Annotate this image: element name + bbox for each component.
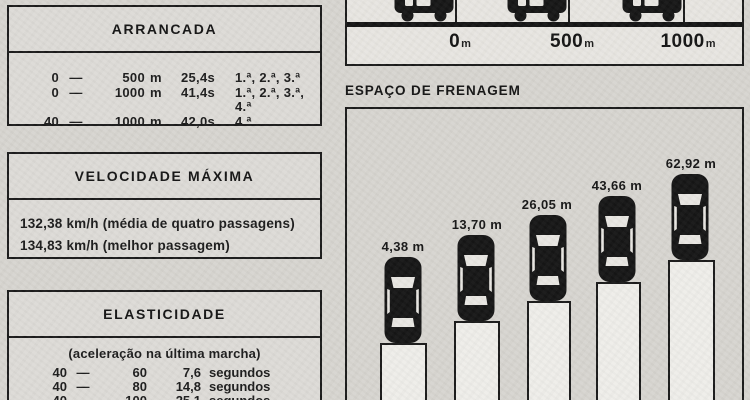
time-unit: segundos: [201, 366, 320, 380]
road-line: [347, 22, 742, 27]
car-top-view-icon: [456, 234, 496, 322]
marker-unit: m: [706, 38, 716, 50]
elasticidade-subtitle: (aceleração na última marcha): [9, 346, 320, 362]
arrancada-title: ARRANCADA: [112, 21, 217, 37]
braking-value-label: 62,92 m: [641, 156, 741, 171]
marker-unit: m: [584, 38, 594, 50]
range-from: 40: [9, 366, 67, 380]
distance-tick-line: [568, 0, 570, 22]
range-to: 1000: [93, 115, 145, 130]
elasticidade-row: 40 — 100 25,1 segundos: [9, 394, 320, 400]
braking-value-label: 4,38 m: [353, 239, 453, 254]
braking-value-label: 13,70 m: [427, 217, 527, 232]
range-unit: m: [145, 86, 167, 115]
range-from: 40: [9, 115, 59, 130]
arrancada-body: 0 — 500 m 25,4s 1.ª, 2.ª, 3.ª 0 — 1000 m…: [9, 53, 320, 129]
gears-used: 1.ª, 2.ª, 3.ª: [229, 71, 320, 86]
braking-bar: [596, 282, 641, 400]
marker-unit: m: [461, 38, 471, 50]
time-unit: segundos: [201, 380, 320, 394]
elasticidade-row: 40 — 60 7,6 segundos: [9, 366, 320, 380]
arrancada-row: 40 — 1000 m 42,0s 4.ª: [9, 115, 320, 130]
braking-bar: [527, 301, 571, 400]
range-unit: m: [145, 71, 167, 86]
range-to: 100: [99, 394, 147, 400]
range-to: 1000: [93, 86, 145, 115]
braking-value-label: 26,05 m: [497, 197, 597, 212]
range-to: 60: [99, 366, 147, 380]
braking-bar: [668, 260, 715, 400]
car-top-view-icon: [383, 256, 423, 344]
arrancada-header: ARRANCADA: [9, 7, 320, 53]
braking-bar: [380, 343, 427, 400]
marker-value: 0: [449, 31, 460, 52]
velocidade-title: VELOCIDADE MÁXIMA: [75, 168, 255, 184]
marker-value: 500: [550, 31, 583, 52]
distance-tick-line: [455, 0, 457, 22]
top-speed-best: 134,83 km/h (melhor passagem): [20, 235, 320, 257]
range-dash: —: [59, 86, 93, 115]
distance-marker-1000m: 1000m: [650, 31, 726, 53]
range-dash: —: [67, 394, 99, 400]
time-value: 14,8: [147, 380, 201, 394]
velocidade-maxima-box: VELOCIDADE MÁXIMA 132,38 km/h (média de …: [7, 152, 322, 259]
time-value: 41,4s: [167, 86, 229, 115]
range-to: 80: [99, 380, 147, 394]
range-dash: —: [59, 71, 93, 86]
range-unit: m: [145, 115, 167, 130]
range-to: 500: [93, 71, 145, 86]
time-value: 25,4s: [167, 71, 229, 86]
car-side-icon: [507, 0, 567, 22]
range-dash: —: [59, 115, 93, 130]
gears-used: 1.ª, 2.ª, 3.ª, 4.ª: [229, 86, 320, 115]
elasticidade-header: ELASTICIDADE: [9, 292, 320, 338]
car-side-icon: [622, 0, 682, 22]
time-value: 42,0s: [167, 115, 229, 130]
marker-value: 1000: [660, 31, 704, 52]
elasticidade-box: ELASTICIDADE (aceleração na última march…: [7, 290, 322, 400]
car-top-view-icon: [597, 195, 637, 283]
time-unit: segundos: [201, 394, 320, 400]
distance-marker-0m: 0m: [425, 31, 495, 53]
arrancada-box: ARRANCADA 0 — 500 m 25,4s 1.ª, 2.ª, 3.ª …: [7, 5, 322, 126]
braking-chart-title: ESPAÇO DE FRENAGEM: [345, 83, 521, 98]
arrancada-row: 0 — 1000 m 41,4s 1.ª, 2.ª, 3.ª, 4.ª: [9, 86, 320, 115]
time-value: 7,6: [147, 366, 201, 380]
braking-value-label: 43,66 m: [567, 178, 667, 193]
road-test-data-page: ARRANCADA 0 — 500 m 25,4s 1.ª, 2.ª, 3.ª …: [0, 0, 750, 400]
distance-tick-line: [683, 0, 685, 22]
car-side-icon: [394, 0, 454, 22]
arrancada-row: 0 — 500 m 25,4s 1.ª, 2.ª, 3.ª: [9, 71, 320, 86]
elasticidade-body: (aceleração na última marcha) 40 — 60 7,…: [9, 338, 320, 400]
braking-bar: [454, 321, 500, 400]
car-top-view-icon: [670, 173, 710, 261]
range-from: 0: [9, 86, 59, 115]
range-dash: —: [67, 380, 99, 394]
car-top-view-icon: [528, 214, 568, 302]
distance-marker-500m: 500m: [537, 31, 607, 53]
elasticidade-title: ELASTICIDADE: [103, 306, 226, 322]
top-speed-average: 132,38 km/h (média de quatro passagens): [20, 213, 320, 235]
velocidade-header: VELOCIDADE MÁXIMA: [9, 154, 320, 200]
range-from: 0: [9, 71, 59, 86]
range-from: 40: [9, 394, 67, 400]
velocidade-body: 132,38 km/h (média de quatro passagens) …: [9, 200, 320, 257]
elasticidade-row: 40 — 80 14,8 segundos: [9, 380, 320, 394]
gears-used: 4.ª: [229, 115, 320, 130]
range-dash: —: [67, 366, 99, 380]
time-value: 25,1: [147, 394, 201, 400]
range-from: 40: [9, 380, 67, 394]
